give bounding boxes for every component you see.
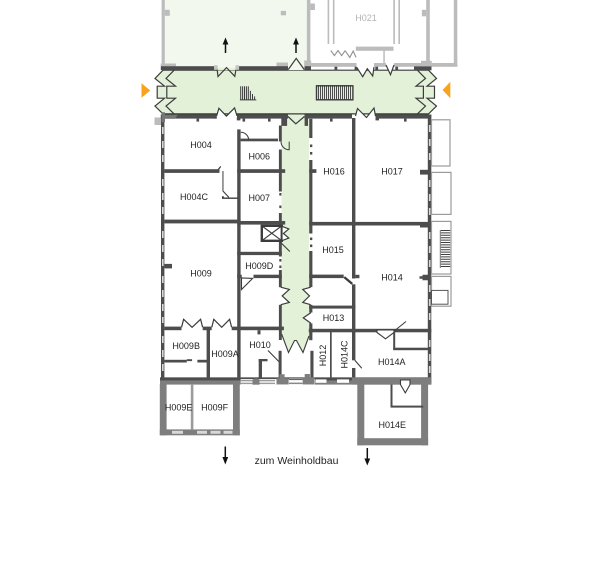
svg-text:H009: H009 bbox=[190, 269, 212, 279]
svg-text:H016: H016 bbox=[323, 167, 345, 177]
svg-text:H014A: H014A bbox=[378, 357, 406, 367]
svg-text:H014C: H014C bbox=[339, 340, 349, 369]
svg-text:H014E: H014E bbox=[379, 420, 407, 430]
svg-text:H014: H014 bbox=[381, 273, 403, 283]
svg-text:H021: H021 bbox=[355, 13, 377, 23]
svg-text:zum Weinholdbau: zum Weinholdbau bbox=[255, 455, 339, 467]
svg-text:H006: H006 bbox=[249, 152, 271, 162]
svg-text:H004: H004 bbox=[190, 140, 212, 150]
svg-text:H013: H013 bbox=[323, 313, 345, 323]
svg-text:H015: H015 bbox=[322, 245, 344, 255]
svg-text:H009F: H009F bbox=[201, 403, 229, 413]
svg-text:H009E: H009E bbox=[165, 403, 193, 413]
svg-text:H012: H012 bbox=[318, 345, 328, 367]
svg-text:H009D: H009D bbox=[245, 261, 274, 271]
svg-text:H009B: H009B bbox=[172, 341, 200, 351]
svg-text:H009A: H009A bbox=[211, 349, 239, 359]
svg-text:H007: H007 bbox=[249, 193, 271, 203]
svg-text:H004C: H004C bbox=[180, 192, 209, 202]
svg-text:H010: H010 bbox=[249, 340, 271, 350]
svg-text:H017: H017 bbox=[381, 167, 403, 177]
